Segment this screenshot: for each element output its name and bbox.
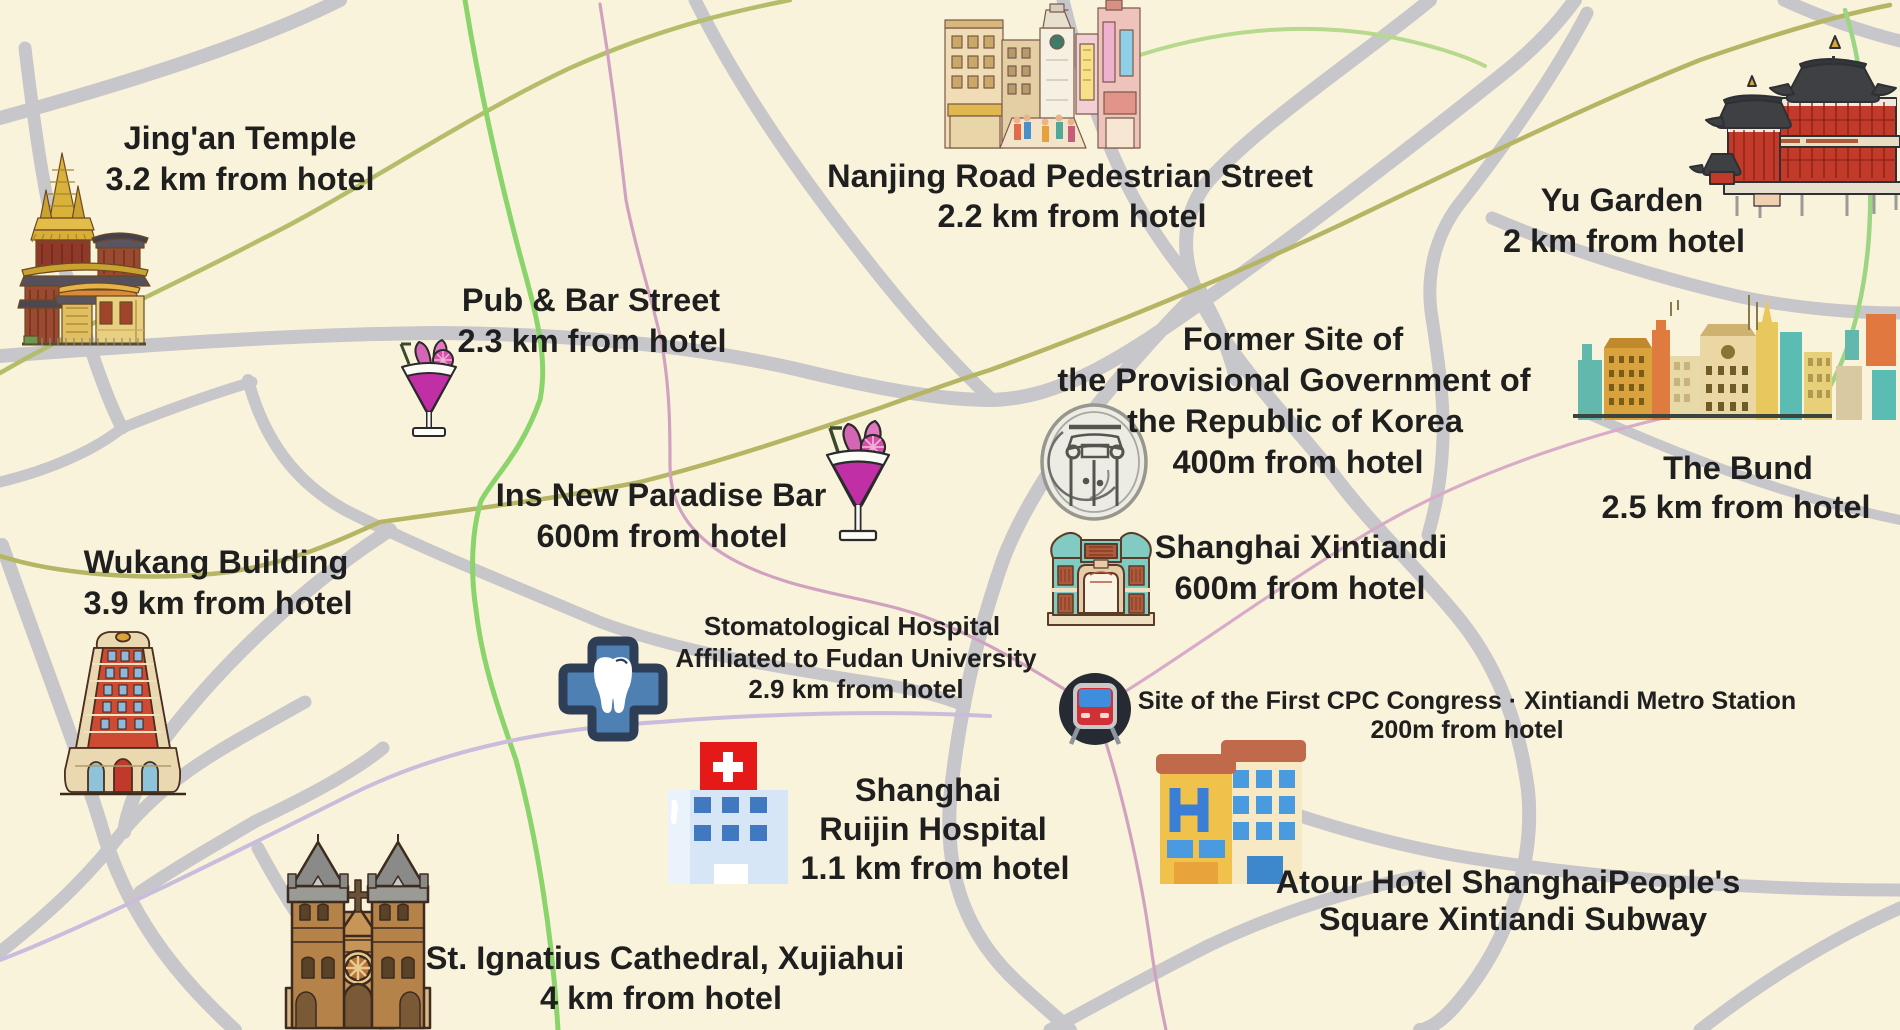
svg-text:Wukang Building: Wukang Building: [84, 544, 349, 580]
svg-text:4 km from hotel: 4 km from hotel: [540, 980, 782, 1016]
svg-text:600m from hotel: 600m from hotel: [1174, 570, 1425, 606]
svg-text:Ins New Paradise Bar: Ins New Paradise Bar: [496, 477, 827, 513]
svg-text:Affiliated to Fudan University: Affiliated to Fudan University: [675, 643, 1037, 673]
svg-text:Atour Hotel ShanghaiPeople's: Atour Hotel ShanghaiPeople's: [1276, 864, 1741, 900]
svg-text:Nanjing Road Pedestrian Street: Nanjing Road Pedestrian Street: [827, 158, 1313, 194]
svg-text:1.1 km from hotel: 1.1 km from hotel: [800, 850, 1069, 886]
svg-text:Stomatological Hospital: Stomatological Hospital: [704, 611, 1000, 641]
svg-text:The Bund: The Bund: [1663, 450, 1813, 486]
svg-text:Ruijin Hospital: Ruijin Hospital: [819, 811, 1047, 847]
svg-text:Jing'an Temple: Jing'an Temple: [124, 120, 357, 156]
svg-text:3.2 km from hotel: 3.2 km from hotel: [105, 161, 374, 197]
svg-text:Pub & Bar Street: Pub & Bar Street: [462, 282, 720, 318]
svg-text:Shanghai: Shanghai: [855, 772, 1001, 808]
svg-text:the Republic of Korea: the Republic of Korea: [1127, 403, 1464, 439]
svg-text:200m from hotel: 200m from hotel: [1370, 716, 1563, 744]
svg-text:Square Xintiandi Subway: Square Xintiandi Subway: [1319, 901, 1707, 937]
svg-text:Former Site of: Former Site of: [1183, 321, 1403, 357]
svg-text:2.5 km from hotel: 2.5 km from hotel: [1601, 489, 1870, 525]
svg-text:2.3 km from hotel: 2.3 km from hotel: [457, 323, 726, 359]
svg-text:Site of the First CPC Congress: Site of the First CPC Congress · Xintian…: [1138, 687, 1796, 715]
svg-text:3.9 km from hotel: 3.9 km from hotel: [83, 585, 352, 621]
svg-text:Yu Garden: Yu Garden: [1541, 182, 1704, 218]
svg-text:2 km from hotel: 2 km from hotel: [1503, 223, 1745, 259]
svg-text:400m from hotel: 400m from hotel: [1172, 444, 1423, 480]
svg-text:St. Ignatius Cathedral, Xujiah: St. Ignatius Cathedral, Xujiahui: [426, 940, 905, 976]
svg-text:600m from hotel: 600m from hotel: [536, 518, 787, 554]
svg-text:2.2 km from hotel: 2.2 km from hotel: [937, 198, 1206, 234]
svg-text:Shanghai Xintiandi: Shanghai Xintiandi: [1155, 529, 1448, 565]
svg-text:2.9 km from hotel: 2.9 km from hotel: [748, 674, 963, 704]
svg-text:the Provisional Government of: the Provisional Government of: [1057, 362, 1530, 398]
